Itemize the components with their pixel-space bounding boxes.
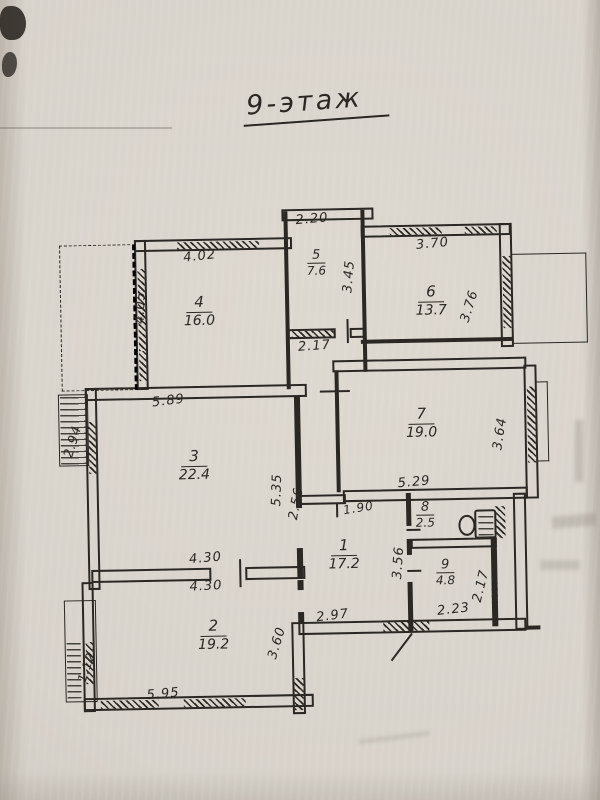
room-label-5: 5 7.6: [285, 245, 348, 277]
room-area: 2.5: [400, 516, 450, 530]
room-label-9: 9 4.8: [417, 555, 474, 587]
wall: [297, 580, 303, 590]
wall: [407, 539, 412, 555]
dimension-tick: [336, 503, 338, 517]
room-area: 16.0: [168, 313, 230, 329]
room-number: 3: [181, 449, 207, 467]
room-label-2: 2 19.2: [182, 617, 245, 653]
dim-label: 4.30: [189, 578, 223, 595]
wall: [411, 537, 497, 549]
room-area: 17.2: [313, 556, 375, 572]
room-area: 22.4: [163, 467, 225, 483]
dim-label: 2.23: [436, 600, 470, 618]
room-number: 7: [408, 406, 434, 424]
room-number: 8: [416, 500, 435, 515]
dim-label: 5.95: [146, 685, 180, 703]
room-label-8: 8 2.5: [400, 497, 451, 529]
wall: [513, 493, 529, 630]
wall: [298, 612, 304, 624]
dim-label: 3.64: [490, 416, 510, 451]
room-number: 4: [186, 295, 212, 313]
room-number: 6: [418, 284, 444, 302]
balcony-door-hatch: [502, 256, 511, 328]
dimension-tick: [320, 390, 350, 393]
dim-label: 5.29: [397, 473, 431, 491]
window-hatch: [139, 351, 147, 381]
dim-label: 3.60: [265, 625, 289, 661]
room-area: 4.8: [417, 573, 473, 587]
dim-label: 5.89: [151, 392, 186, 411]
wall: [361, 337, 513, 344]
room-number: 2: [200, 618, 226, 636]
dim-label: 4.02: [183, 247, 217, 265]
wall: [526, 625, 540, 629]
dim-label: 5.35: [269, 473, 285, 506]
entry-door-hatch: [383, 622, 429, 632]
floor-plan: 9-этаж: [0, 0, 600, 800]
room-number: 9: [436, 558, 455, 573]
dim-label: 3.45: [340, 259, 358, 293]
bay-right: [536, 381, 550, 461]
dimension-tick: [346, 319, 348, 343]
room-number: 5: [307, 248, 326, 263]
dim-label: 2.56: [286, 486, 307, 521]
window-hatch: [294, 678, 304, 710]
toilet-icon: [458, 515, 475, 536]
room-label-4: 4 16.0: [168, 293, 231, 329]
window-hatch: [527, 386, 536, 462]
room-area: 19.2: [183, 637, 245, 653]
window-hatch: [88, 422, 96, 474]
wall: [332, 357, 526, 373]
room-area: 13.7: [400, 303, 462, 319]
room-label-3: 3 22.4: [163, 447, 226, 483]
wall: [297, 548, 304, 578]
room-area: 19.0: [391, 425, 453, 441]
room-area: 7.6: [285, 264, 347, 278]
room-label-7: 7 19.0: [390, 405, 453, 441]
dim-label: 3.70: [415, 235, 449, 253]
floor-title: 9-этаж: [241, 80, 390, 126]
room-label-6: 6 13.7: [400, 283, 463, 319]
room-label-1: 1 17.2: [313, 537, 376, 573]
dim-label: 4.05: [133, 291, 149, 324]
window-hatch: [184, 698, 246, 707]
window-hatch: [390, 227, 442, 235]
dimension-tick: [239, 559, 242, 587]
dim-label: 2.17: [297, 338, 331, 355]
scanned-paper: 9-этаж: [0, 0, 600, 800]
balcony-left-top: [59, 244, 138, 391]
toilet-tank-hatch: [478, 512, 493, 535]
door-swing: [391, 633, 413, 661]
wall: [334, 370, 340, 492]
room-number: 1: [331, 538, 357, 556]
balcony-right: [511, 252, 588, 343]
window-hatch: [492, 582, 499, 610]
window-hatch: [465, 226, 497, 234]
dim-label: 2.20: [295, 210, 329, 228]
dim-label: 3.56: [390, 546, 407, 580]
dim-label: 4.30: [188, 549, 222, 567]
